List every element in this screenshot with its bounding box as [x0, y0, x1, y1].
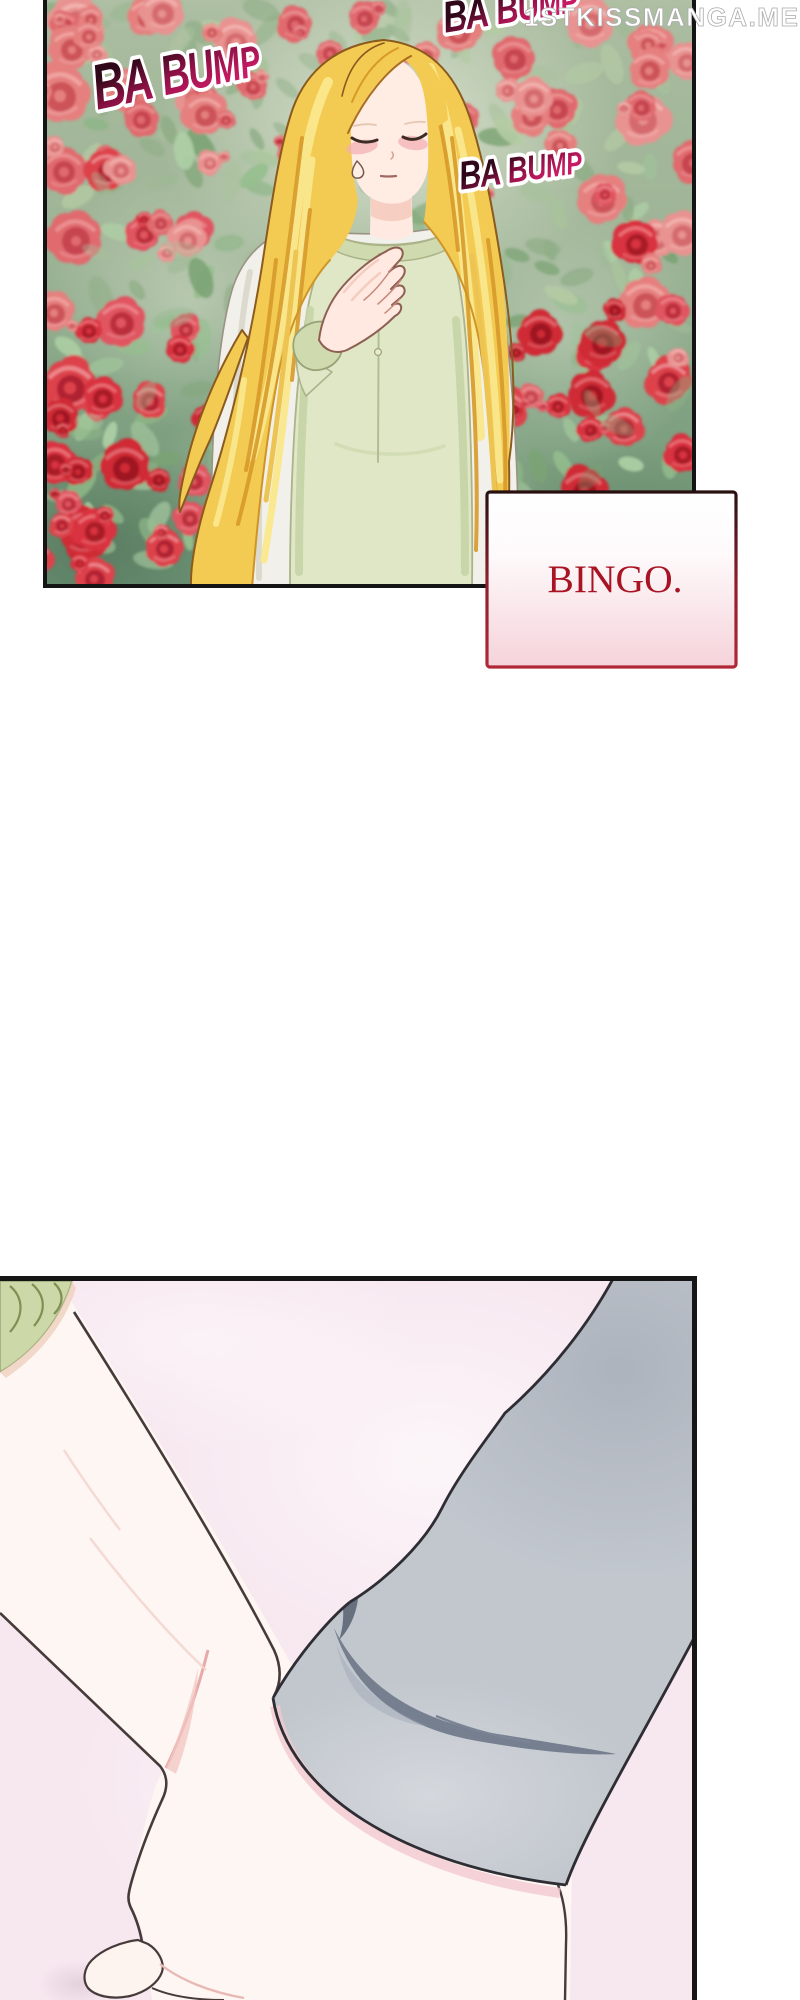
- svg-text:BINGO.: BINGO.: [548, 557, 683, 601]
- svg-text:1STKISSMANGA.ME: 1STKISSMANGA.ME: [524, 2, 799, 32]
